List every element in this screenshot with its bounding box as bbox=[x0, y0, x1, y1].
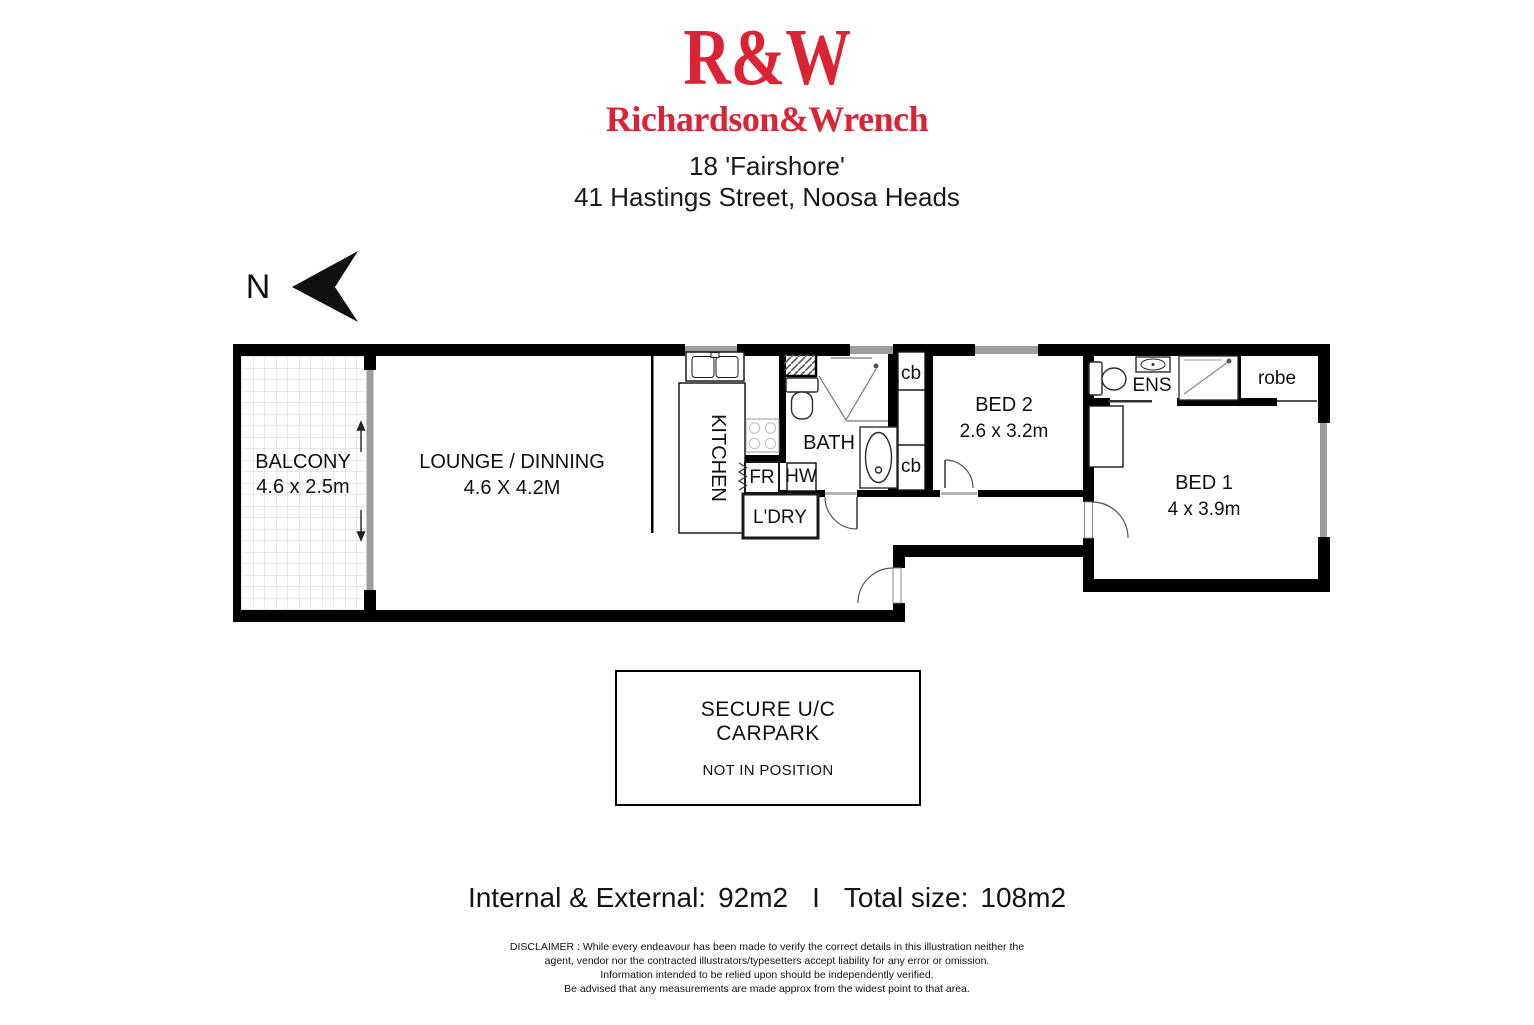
bath-door-arc bbox=[825, 497, 857, 529]
address-line-1: 18 'Fairshore' bbox=[0, 152, 1534, 180]
page: R&W Richardson&Wrench 18 'Fairshore' 41 … bbox=[0, 0, 1534, 1025]
rw-brand-name: Richardson&Wrench bbox=[0, 100, 1534, 138]
carpark-note: NOT IN POSITION bbox=[617, 762, 919, 779]
bed1-label: BED 1 bbox=[1175, 472, 1233, 494]
balcony-dims: 4.6 x 2.5m bbox=[256, 476, 349, 498]
hot-water-label: HW bbox=[785, 466, 817, 487]
ens-toilet-icon bbox=[1089, 362, 1102, 395]
window-bed2 bbox=[975, 346, 1038, 354]
balcony-sliding-door bbox=[367, 370, 374, 590]
summary-label2: Total size: bbox=[844, 882, 969, 913]
header: R&W Richardson&Wrench 18 'Fairshore' 41 … bbox=[0, 0, 1534, 211]
window-bed1 bbox=[1320, 423, 1327, 537]
cupboard-bottom-label: cb bbox=[901, 456, 921, 477]
disclaimer-line: agent, vendor nor the contracted illustr… bbox=[0, 954, 1534, 968]
summary-value1: 92m2 bbox=[718, 882, 788, 913]
disclaimer: DISCLAIMER : While every endeavour has b… bbox=[0, 940, 1534, 996]
laundry-label: L'DRY bbox=[753, 507, 807, 528]
wardrobe-box bbox=[1089, 406, 1123, 467]
rw-logo: R&W bbox=[0, 18, 1534, 98]
rw-logo-text: R&W bbox=[683, 18, 851, 98]
toilet-icon bbox=[786, 378, 818, 392]
bed1-door-arc bbox=[1092, 502, 1128, 538]
carpark-line2: CARPARK bbox=[617, 722, 919, 746]
robe-shelf-line bbox=[1277, 400, 1317, 402]
robe-label: robe bbox=[1258, 368, 1296, 389]
ens-slider-door bbox=[1108, 400, 1152, 403]
service-shaft-icon bbox=[783, 353, 816, 376]
kitchen-label: KITCHEN bbox=[707, 414, 729, 502]
disclaimer-line: DISCLAIMER : While every endeavour has b… bbox=[0, 940, 1534, 954]
address-line-2: 41 Hastings Street, Noosa Heads bbox=[0, 183, 1534, 211]
summary-label1: Internal & External: bbox=[468, 882, 706, 913]
entry-door-arc bbox=[858, 568, 893, 603]
bath-label: BATH bbox=[803, 432, 855, 454]
area-summary: Internal & External:92m2ITotal size:108m… bbox=[0, 882, 1534, 914]
bed1-door bbox=[1085, 502, 1093, 538]
lounge-dims: 4.6 X 4.2M bbox=[464, 477, 561, 499]
carpark-box: SECURE U/C CARPARK NOT IN POSITION bbox=[615, 670, 921, 806]
disclaimer-line: Information intended to be relied upon s… bbox=[0, 968, 1534, 982]
summary-value2: 108m2 bbox=[980, 882, 1066, 913]
disclaimer-line: Be advised that any measurements are mad… bbox=[0, 982, 1534, 996]
shower-icon bbox=[819, 358, 888, 421]
bed2-label: BED 2 bbox=[975, 394, 1033, 416]
floorplan: N bbox=[225, 240, 1340, 640]
bed2-dims: 2.6 x 3.2m bbox=[960, 421, 1049, 442]
entry-door bbox=[893, 568, 901, 603]
lounge-label: LOUNGE / DINNING bbox=[419, 451, 605, 473]
ensuite-label: ENS bbox=[1132, 375, 1171, 396]
bed2-door-arc bbox=[945, 460, 973, 488]
ens-shower-icon bbox=[1179, 356, 1238, 400]
bed1-dims: 4 x 3.9m bbox=[1168, 499, 1241, 520]
cupboard-top-label: cb bbox=[901, 363, 921, 384]
fridge-label: FR bbox=[749, 467, 774, 488]
north-arrow-icon bbox=[292, 251, 358, 322]
summary-separator: I bbox=[812, 882, 820, 913]
balcony-label: BALCONY bbox=[255, 451, 351, 473]
window-bath bbox=[850, 346, 893, 354]
tap-icon bbox=[711, 353, 719, 358]
north-label: N bbox=[246, 268, 271, 306]
carpark-line1: SECURE U/C bbox=[617, 698, 919, 722]
north-indicator: N bbox=[246, 251, 358, 322]
